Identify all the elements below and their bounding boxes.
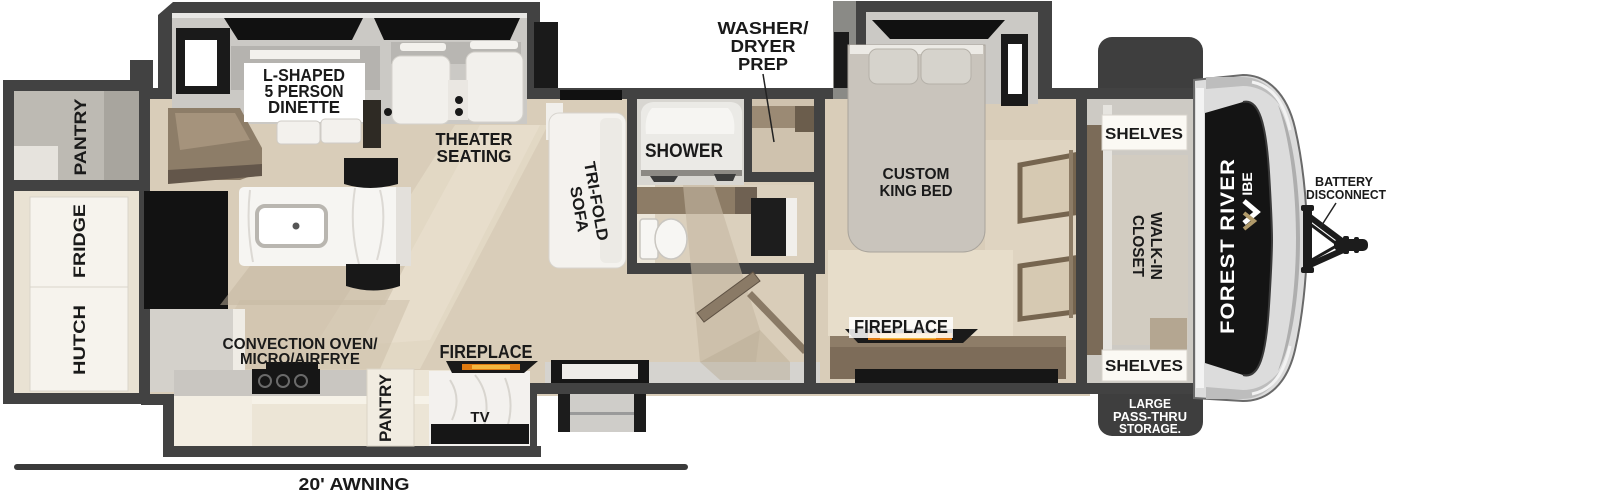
- svg-text:DINETTE: DINETTE: [268, 97, 340, 117]
- svg-text:FIREPLACE: FIREPLACE: [854, 317, 948, 337]
- svg-text:PREP: PREP: [738, 54, 788, 74]
- svg-text:MICRO/AIRFRYE: MICRO/AIRFRYE: [240, 351, 360, 368]
- svg-text:DISCONNECT: DISCONNECT: [1306, 187, 1386, 202]
- svg-text:CUSTOM: CUSTOM: [883, 166, 950, 183]
- svg-text:SHELVES: SHELVES: [1105, 358, 1183, 375]
- svg-text:WALK-IN: WALK-IN: [1147, 212, 1164, 280]
- svg-text:TV: TV: [470, 409, 489, 426]
- svg-text:SHELVES: SHELVES: [1105, 126, 1183, 143]
- svg-text:FIREPLACE: FIREPLACE: [440, 342, 533, 362]
- svg-text:20' AWNING: 20' AWNING: [299, 474, 410, 493]
- svg-text:PANTRY: PANTRY: [72, 99, 90, 176]
- svg-text:PANTRY: PANTRY: [377, 374, 395, 442]
- svg-text:SEATING: SEATING: [437, 146, 512, 166]
- svg-text:LARGE: LARGE: [1129, 397, 1171, 411]
- svg-text:STORAGE.: STORAGE.: [1119, 422, 1181, 436]
- svg-text:DRYER: DRYER: [731, 36, 796, 56]
- svg-text:KING BED: KING BED: [880, 183, 953, 200]
- svg-text:CLOSET: CLOSET: [1129, 215, 1146, 278]
- svg-text:WASHER/: WASHER/: [718, 18, 809, 38]
- svg-text:FRIDGE: FRIDGE: [71, 204, 89, 278]
- svg-text:HUTCH: HUTCH: [71, 305, 89, 375]
- svg-text:SHOWER: SHOWER: [645, 141, 723, 162]
- svg-text:IBE: IBE: [1239, 172, 1255, 195]
- svg-text:FOREST RIVER: FOREST RIVER: [1218, 158, 1239, 334]
